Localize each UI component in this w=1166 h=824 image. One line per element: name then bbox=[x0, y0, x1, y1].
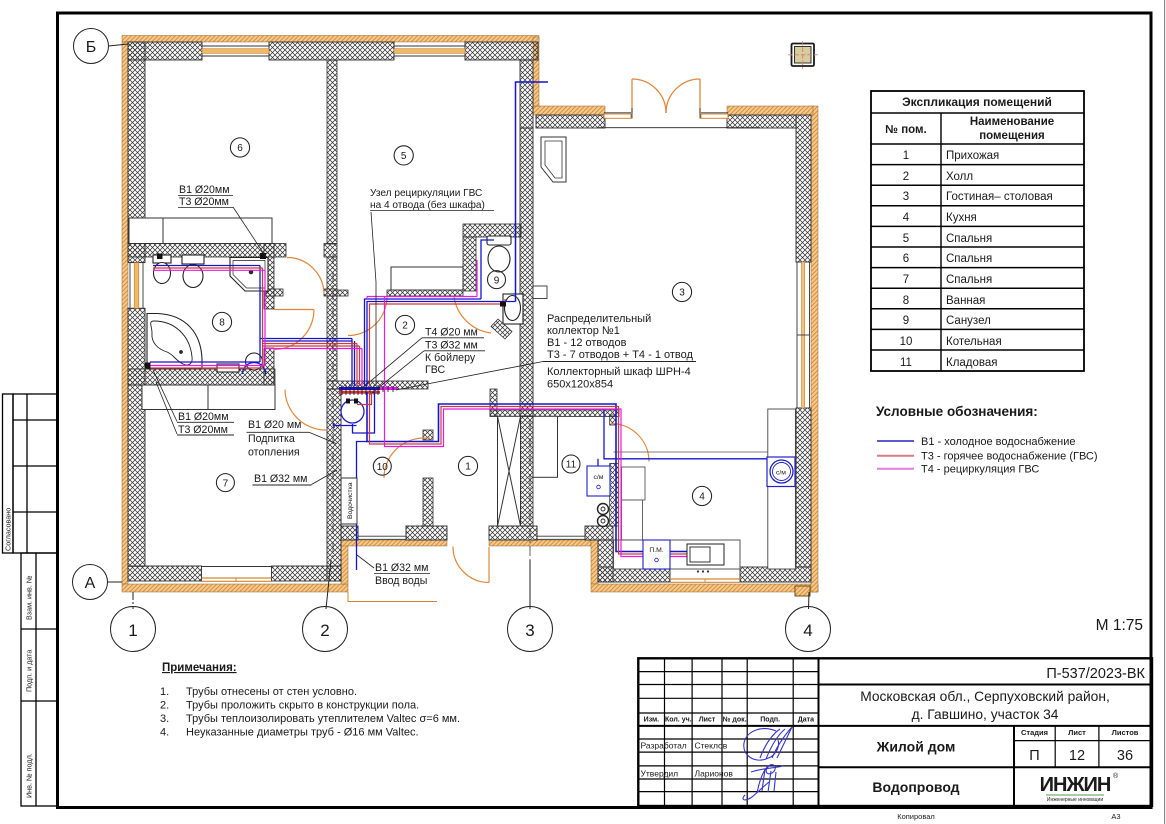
svg-text:Т3 - горячее водоснабжение (ГВ: Т3 - горячее водоснабжение (ГВС) bbox=[921, 451, 1098, 463]
svg-text:Спальня: Спальня bbox=[946, 274, 992, 286]
svg-text:Т4 - рециркуляция ГВС: Т4 - рециркуляция ГВС bbox=[921, 464, 1039, 476]
svg-text:1: 1 bbox=[128, 621, 137, 640]
svg-text:1: 1 bbox=[465, 462, 471, 473]
svg-text:Листов: Листов bbox=[1112, 728, 1139, 737]
svg-text:Экспликация помещений: Экспликация помещений bbox=[902, 95, 1052, 109]
svg-text:Копировал: Копировал bbox=[897, 812, 935, 821]
svg-text:11: 11 bbox=[566, 460, 577, 471]
svg-text:Котельная: Котельная bbox=[946, 336, 1002, 348]
svg-text:д. Гавшино, участок 34: д. Гавшино, участок 34 bbox=[912, 707, 1059, 722]
svg-text:Подпитка: Подпитка bbox=[248, 433, 295, 445]
svg-text:Т3 Ø20мм: Т3 Ø20мм bbox=[179, 196, 229, 208]
svg-text:Т3 Ø32 мм: Т3 Ø32 мм bbox=[425, 340, 478, 352]
svg-text:4: 4 bbox=[903, 212, 910, 224]
svg-text:Трубы отнесены от стен условно: Трубы отнесены от стен условно. bbox=[186, 686, 357, 698]
svg-text:2: 2 bbox=[402, 321, 408, 332]
svg-text:коллектор №1: коллектор №1 bbox=[547, 325, 620, 337]
svg-text:№ док.: № док. bbox=[723, 716, 747, 724]
svg-text:с/м: с/м bbox=[594, 474, 604, 481]
svg-text:Лист: Лист bbox=[1068, 728, 1086, 737]
svg-text:10: 10 bbox=[900, 336, 913, 348]
svg-text:Наименование: Наименование bbox=[970, 116, 1054, 128]
svg-text:Разработал: Разработал bbox=[641, 741, 687, 751]
svg-text:Водочистка: Водочистка bbox=[347, 482, 354, 519]
svg-text:Примечания:: Примечания: bbox=[162, 662, 237, 674]
svg-text:4: 4 bbox=[699, 492, 705, 503]
svg-text:Изм.: Изм. bbox=[644, 717, 660, 724]
svg-text:А3: А3 bbox=[1111, 812, 1120, 821]
svg-text:Спальня: Спальня bbox=[946, 253, 992, 265]
svg-text:В1 Ø32 мм: В1 Ø32 мм bbox=[375, 562, 428, 574]
svg-text:Прихожая: Прихожая bbox=[946, 150, 999, 162]
svg-text:П: П bbox=[1029, 748, 1039, 764]
svg-text:4: 4 bbox=[803, 621, 812, 640]
svg-text:Т3 - 7 отводов + Т4 - 1 отвод: Т3 - 7 отводов + Т4 - 1 отвод bbox=[547, 349, 694, 361]
svg-text:с/м: с/м bbox=[776, 470, 786, 477]
svg-text:В1 Ø32 мм: В1 Ø32 мм bbox=[254, 473, 307, 485]
svg-text:Подп.: Подп. bbox=[760, 717, 780, 724]
svg-text:4.: 4. bbox=[160, 727, 169, 739]
svg-text:П.М.: П.М. bbox=[649, 547, 663, 554]
svg-text:Стеклов: Стеклов bbox=[695, 741, 728, 751]
svg-text:8: 8 bbox=[903, 295, 909, 307]
svg-text:Ввод воды: Ввод воды bbox=[375, 575, 427, 587]
svg-text:М 1:75: М 1:75 bbox=[1096, 617, 1143, 634]
svg-text:помещения: помещения bbox=[979, 130, 1045, 142]
svg-text:Ванная: Ванная bbox=[946, 295, 985, 307]
svg-text:Т4 Ø20 мм: Т4 Ø20 мм bbox=[425, 327, 478, 339]
svg-text:Условные обозначения:: Условные обозначения: bbox=[876, 404, 1038, 419]
svg-text:Неуказанные диаметры труб - Ø1: Неуказанные диаметры труб - Ø16 мм Valte… bbox=[186, 727, 419, 739]
svg-text:Распределительный: Распределительный bbox=[547, 313, 651, 325]
svg-text:3: 3 bbox=[903, 191, 909, 203]
svg-text:Трубы теплоизолировать утеплит: Трубы теплоизолировать утеплителем Valte… bbox=[186, 713, 460, 725]
svg-text:Ларионов: Ларионов bbox=[695, 769, 734, 779]
svg-text:П-537/2023-ВК: П-537/2023-ВК bbox=[1046, 666, 1145, 682]
svg-text:В1 - холодное водоснабжение: В1 - холодное водоснабжение bbox=[921, 436, 1076, 448]
svg-text:3: 3 bbox=[679, 288, 685, 299]
svg-text:Лист: Лист bbox=[699, 717, 716, 724]
svg-text:Инженерные инновации: Инженерные инновации bbox=[1047, 797, 1103, 803]
svg-text:Стадия: Стадия bbox=[1021, 728, 1048, 737]
svg-text:В1 - 12 отводов: В1 - 12 отводов bbox=[547, 337, 627, 349]
svg-text:Кол. уч.: Кол. уч. bbox=[665, 717, 692, 724]
svg-text:Гостиная– столовая: Гостиная– столовая bbox=[946, 191, 1053, 203]
svg-text:3.: 3. bbox=[160, 713, 169, 725]
svg-text:5: 5 bbox=[903, 233, 909, 245]
svg-text:10: 10 bbox=[377, 462, 389, 473]
svg-text:2: 2 bbox=[903, 171, 909, 183]
svg-text:Узел рециркуляции ГВС: Узел рециркуляции ГВС bbox=[370, 188, 482, 199]
svg-text:ГВС: ГВС bbox=[425, 364, 445, 376]
svg-text:9: 9 bbox=[494, 275, 500, 286]
svg-text:Согласовано: Согласовано bbox=[4, 508, 13, 551]
svg-text:№ пом.: № пом. bbox=[885, 124, 927, 136]
svg-text:9: 9 bbox=[903, 315, 909, 327]
svg-text:Дата: Дата bbox=[798, 717, 814, 724]
svg-text:В1 Ø20мм: В1 Ø20мм bbox=[179, 184, 230, 196]
svg-text:Подп. и дата: Подп. и дата bbox=[25, 650, 34, 692]
svg-text:В1 Ø20 мм: В1 Ø20 мм bbox=[248, 419, 301, 431]
svg-text:®: ® bbox=[1113, 772, 1119, 780]
svg-text:Кладовая: Кладовая bbox=[946, 357, 998, 369]
svg-text:Утвердил: Утвердил bbox=[641, 769, 679, 779]
svg-text:36: 36 bbox=[1117, 748, 1133, 764]
svg-text:Т3 Ø20мм: Т3 Ø20мм bbox=[178, 424, 228, 436]
svg-text:3: 3 bbox=[525, 621, 534, 640]
svg-text:Трубы проложить скрыто в конст: Трубы проложить скрыто в конструкции пол… bbox=[186, 700, 419, 712]
svg-text:Б: Б bbox=[86, 39, 97, 56]
svg-text:650х120х854: 650х120х854 bbox=[547, 379, 613, 391]
svg-text:1: 1 bbox=[903, 150, 909, 162]
svg-text:6: 6 bbox=[903, 253, 909, 265]
svg-text:Спальня: Спальня bbox=[946, 233, 992, 245]
svg-text:7: 7 bbox=[223, 478, 229, 489]
svg-text:на 4 отвода (без шкафа): на 4 отвода (без шкафа) bbox=[370, 199, 485, 211]
svg-text:7: 7 bbox=[903, 274, 909, 286]
svg-text:ИНЖИН: ИНЖИН bbox=[1040, 774, 1111, 796]
svg-text:Коллекторный шкаф ШРН-4: Коллекторный шкаф ШРН-4 bbox=[547, 366, 691, 378]
svg-text:2.: 2. bbox=[160, 700, 169, 712]
svg-text:Жилой дом: Жилой дом bbox=[876, 739, 956, 755]
svg-text:Водопровод: Водопровод bbox=[872, 779, 959, 795]
svg-text:1.: 1. bbox=[160, 686, 169, 698]
svg-text:8: 8 bbox=[219, 318, 225, 329]
svg-text:Взам. инв. №: Взам. инв. № bbox=[25, 575, 34, 620]
svg-text:Холл: Холл bbox=[946, 171, 973, 183]
svg-text:отопления: отопления bbox=[248, 447, 300, 459]
svg-text:В1 Ø20мм: В1 Ø20мм bbox=[178, 411, 229, 423]
svg-text:Кухня: Кухня bbox=[946, 212, 977, 224]
svg-text:Инв. № подл.: Инв. № подл. bbox=[25, 753, 34, 798]
svg-text:Московская обл., Серпуховский: Московская обл., Серпуховский район, bbox=[860, 689, 1110, 704]
svg-text:12: 12 bbox=[1069, 748, 1085, 764]
svg-text:5: 5 bbox=[401, 151, 407, 162]
svg-text:К бойлеру: К бойлеру bbox=[425, 352, 476, 364]
svg-text:11: 11 bbox=[900, 357, 912, 369]
svg-text:Санузел: Санузел bbox=[946, 315, 991, 327]
svg-text:2: 2 bbox=[320, 621, 329, 640]
svg-text:6: 6 bbox=[237, 143, 243, 154]
svg-text:А: А bbox=[85, 575, 96, 592]
